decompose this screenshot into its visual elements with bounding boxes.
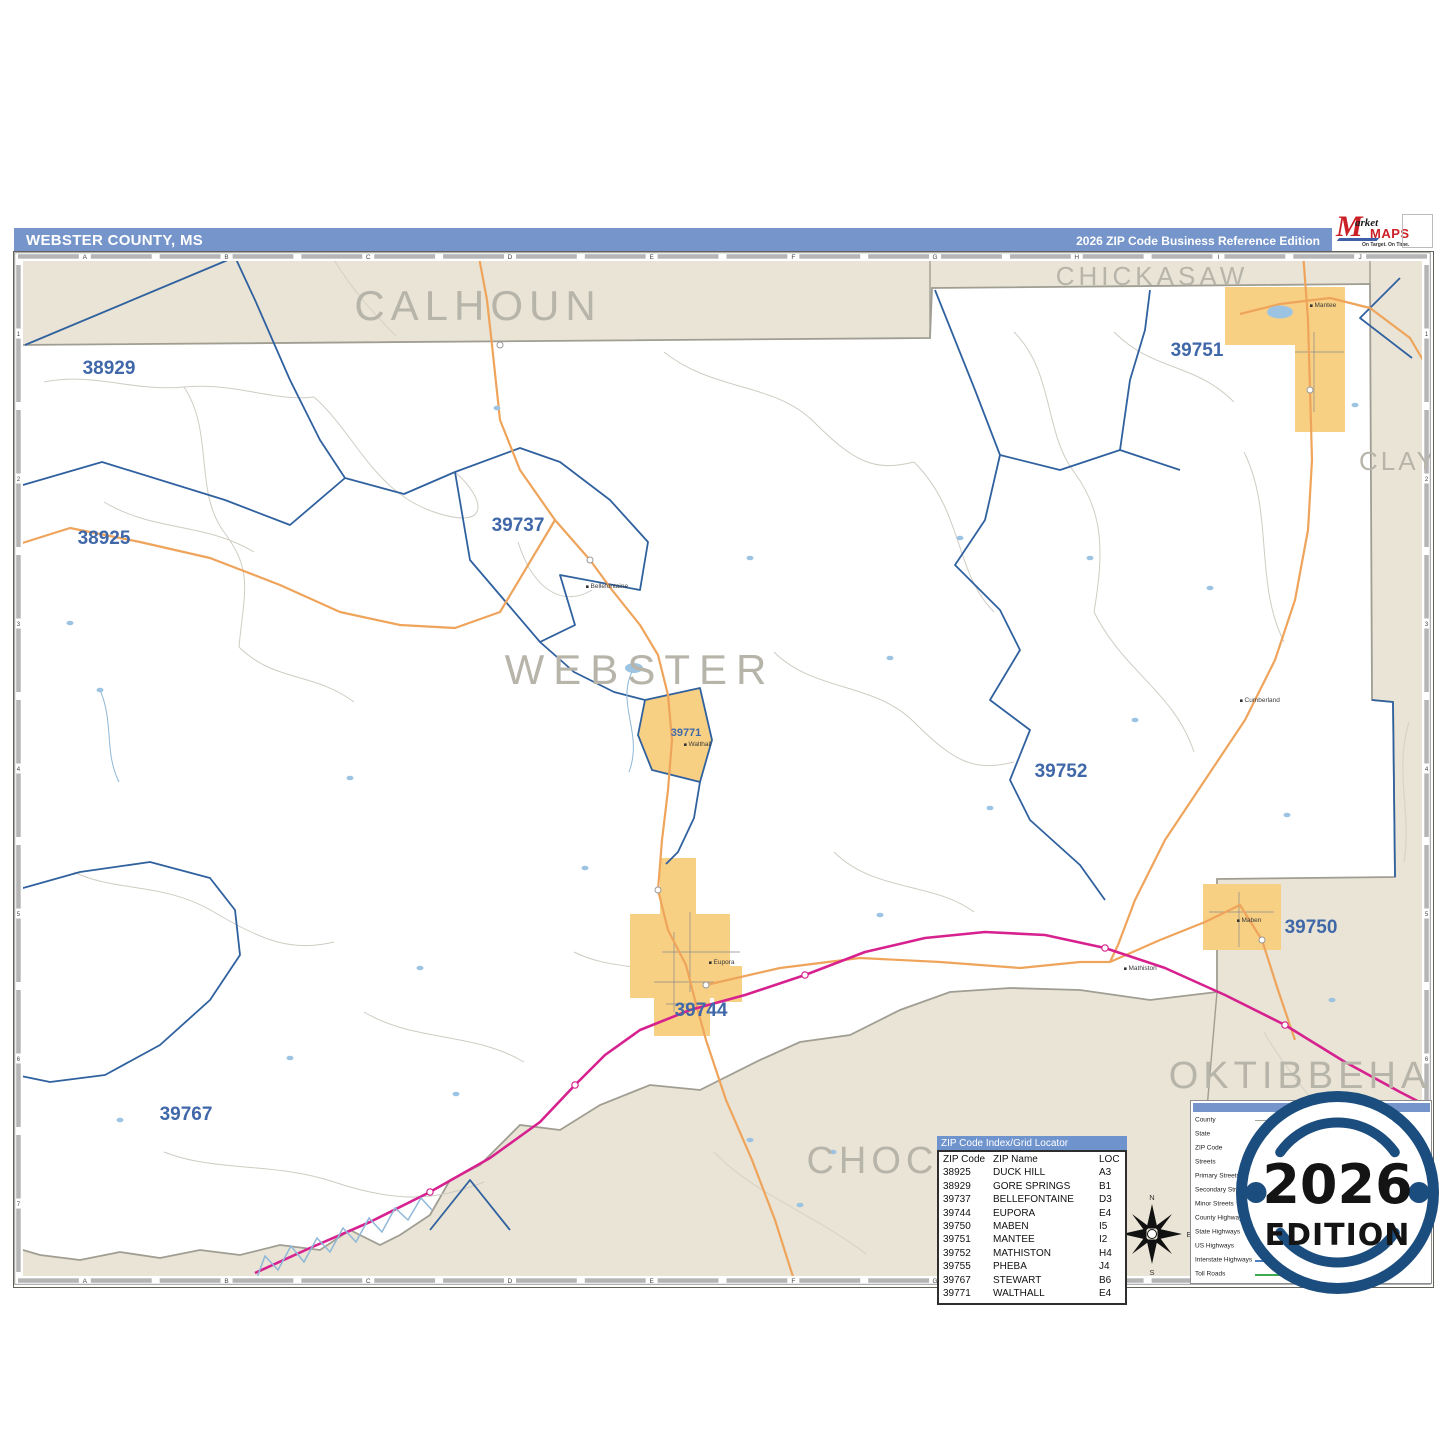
legend-label: US Highways xyxy=(1195,1243,1234,1250)
index-cell: 39737 xyxy=(942,1193,992,1206)
index-cell: 39744 xyxy=(942,1207,992,1220)
index-row: 38929GORE SPRINGSB1 xyxy=(942,1180,1123,1193)
town-label-mantee: Mantee xyxy=(1315,302,1337,309)
index-cell: I5 xyxy=(1098,1220,1123,1233)
index-cell: GORE SPRINGS xyxy=(992,1180,1098,1193)
index-cell: 39767 xyxy=(942,1274,992,1287)
legend-label: ZIP Code xyxy=(1195,1145,1222,1152)
map-poster-page: WEBSTER COUNTY, MS 2026 ZIP Code Busines… xyxy=(0,0,1445,1445)
water-body xyxy=(1132,718,1139,723)
index-cell: DUCK HILL xyxy=(992,1166,1098,1179)
index-cell: 39751 xyxy=(942,1233,992,1246)
county-label-chickasaw: CHICKASAW xyxy=(1056,261,1249,291)
grid-col-label: F xyxy=(791,254,795,261)
town-label-eupora: Eupora xyxy=(714,959,735,966)
index-row: 39767STEWARTB6 xyxy=(942,1274,1123,1287)
water-body xyxy=(453,1092,460,1097)
index-row: 39771WALTHALLE4 xyxy=(942,1287,1123,1300)
index-cell: MATHISTON xyxy=(992,1247,1098,1260)
water-body xyxy=(417,966,424,971)
zip-label-39744: 39744 xyxy=(675,1000,728,1021)
col-loc: LOC xyxy=(1098,1153,1123,1166)
water-body xyxy=(1352,403,1359,408)
zip-label-38925: 38925 xyxy=(78,528,131,549)
water-body xyxy=(747,556,754,561)
index-cell: H4 xyxy=(1098,1247,1123,1260)
zip-label-38929: 38929 xyxy=(83,358,136,379)
grid-col-label: A xyxy=(83,254,88,261)
index-cell: A3 xyxy=(1098,1166,1123,1179)
index-cell: B6 xyxy=(1098,1274,1123,1287)
grid-col-label: C xyxy=(366,254,371,261)
index-cell: J4 xyxy=(1098,1260,1123,1273)
index-row: 38925DUCK HILLA3 xyxy=(942,1166,1123,1179)
index-cell: BELLEFONTAINE xyxy=(992,1193,1098,1206)
grid-col-label: E xyxy=(649,254,654,261)
water-body xyxy=(887,656,894,661)
grid-col-label: J xyxy=(1359,254,1362,261)
index-header-row: ZIP Code ZIP Name LOC xyxy=(942,1153,1123,1166)
index-cell: EUPORA xyxy=(992,1207,1098,1220)
zip-index-table: ZIP Code Index/Grid Locator ZIP Code ZIP… xyxy=(937,1136,1127,1305)
index-cell: 38925 xyxy=(942,1166,992,1179)
grid-col-label: G xyxy=(933,254,938,261)
compass-n: N xyxy=(1149,1193,1154,1202)
index-cell: D3 xyxy=(1098,1193,1123,1206)
town-marker xyxy=(1237,919,1240,922)
index-row: 39750MABENI5 xyxy=(942,1220,1123,1233)
water-body xyxy=(67,621,74,626)
index-row: 39751MANTEEI2 xyxy=(942,1233,1123,1246)
town-marker xyxy=(1124,967,1127,970)
zip-label-39751: 39751 xyxy=(1171,340,1224,361)
town-marker xyxy=(684,743,687,746)
compass-s: S xyxy=(1149,1268,1154,1277)
water-body xyxy=(97,688,104,693)
col-zip-code: ZIP Code xyxy=(942,1153,992,1166)
badge-year: 2026 xyxy=(1262,1153,1412,1216)
water-body xyxy=(1207,586,1214,591)
index-cell: 39752 xyxy=(942,1247,992,1260)
legend-label: State xyxy=(1195,1131,1210,1138)
water-body xyxy=(877,913,884,918)
town-marker xyxy=(1240,699,1243,702)
legend-label: Streets xyxy=(1195,1159,1216,1166)
edition-subtitle: 2026 ZIP Code Business Reference Edition xyxy=(1076,234,1320,248)
county-label-calhoun: CALHOUN xyxy=(354,282,601,329)
town-label-walthall: Walthall xyxy=(689,741,712,748)
town-label-maben: Maben xyxy=(1242,917,1262,924)
water-body xyxy=(494,406,501,411)
index-cell: 39750 xyxy=(942,1220,992,1233)
index-cell: STEWART xyxy=(992,1274,1098,1287)
logo-contact-block xyxy=(1402,214,1433,248)
index-cell: 39755 xyxy=(942,1260,992,1273)
grid-col-label: B xyxy=(224,254,228,261)
zip-label-39737: 39737 xyxy=(492,515,545,536)
index-cell: B1 xyxy=(1098,1180,1123,1193)
water-body xyxy=(957,536,964,541)
water-body xyxy=(1329,998,1336,1003)
zip-index-title: ZIP Code Index/Grid Locator xyxy=(937,1136,1127,1150)
county-label-webster: WEBSTER xyxy=(505,646,776,693)
logo-swoosh xyxy=(1337,238,1380,241)
index-cell: E4 xyxy=(1098,1207,1123,1220)
legend-label: County xyxy=(1195,1117,1216,1124)
index-cell: 38929 xyxy=(942,1180,992,1193)
town-marker xyxy=(1310,304,1313,307)
header-bar: WEBSTER COUNTY, MS 2026 ZIP Code Busines… xyxy=(14,228,1332,253)
county-label-clay: CLAY xyxy=(1359,446,1431,476)
grid-col-label: I xyxy=(1218,254,1220,261)
water-body xyxy=(287,1056,294,1061)
index-cell: I2 xyxy=(1098,1233,1123,1246)
index-cell: MABEN xyxy=(992,1220,1098,1233)
zip-index-body: ZIP Code ZIP Name LOC 38925DUCK HILLA338… xyxy=(937,1150,1127,1305)
water-body xyxy=(1284,813,1291,818)
town-marker xyxy=(586,585,589,588)
zip-label-39752: 39752 xyxy=(1035,761,1088,782)
index-cell: PHEBA xyxy=(992,1260,1098,1273)
water-body xyxy=(347,776,354,781)
zip-label-39750: 39750 xyxy=(1285,917,1338,938)
index-cell: WALTHALL xyxy=(992,1287,1098,1300)
town-label-mathiston: Mathiston xyxy=(1129,965,1158,972)
town-label-bellefontaine: Bellefontaine xyxy=(591,583,629,590)
index-row: 39737BELLEFONTAINED3 xyxy=(942,1193,1123,1206)
zip-label-39767: 39767 xyxy=(160,1104,213,1125)
edition-badge: 2026 EDITION xyxy=(1232,1087,1443,1298)
col-zip-name: ZIP Name xyxy=(992,1153,1098,1166)
water-body xyxy=(1267,306,1293,319)
grid-col-label: H xyxy=(1074,254,1079,261)
water-body xyxy=(747,1138,754,1143)
index-row: 39752MATHISTONH4 xyxy=(942,1247,1123,1260)
index-cell: E4 xyxy=(1098,1287,1123,1300)
grid-col-label: D xyxy=(508,254,513,261)
index-row: 39755PHEBAJ4 xyxy=(942,1260,1123,1273)
water-body xyxy=(582,866,589,871)
compass-center xyxy=(1148,1230,1157,1239)
town-marker xyxy=(709,961,712,964)
legend-label: Toll Roads xyxy=(1195,1271,1225,1278)
badge-edition: EDITION xyxy=(1265,1218,1411,1253)
zip-label-39771: 39771 xyxy=(671,727,702,739)
water-body xyxy=(797,1203,804,1208)
water-body xyxy=(1087,556,1094,561)
legend-label: Minor Streets xyxy=(1195,1201,1234,1208)
water-body xyxy=(987,806,994,811)
index-cell: 39771 xyxy=(942,1287,992,1300)
index-cell: MANTEE xyxy=(992,1233,1098,1246)
water-body xyxy=(117,1118,124,1123)
page-title: WEBSTER COUNTY, MS xyxy=(26,232,203,249)
index-row: 39744EUPORAE4 xyxy=(942,1207,1123,1220)
town-label-cumberland: Cumberland xyxy=(1245,697,1281,704)
